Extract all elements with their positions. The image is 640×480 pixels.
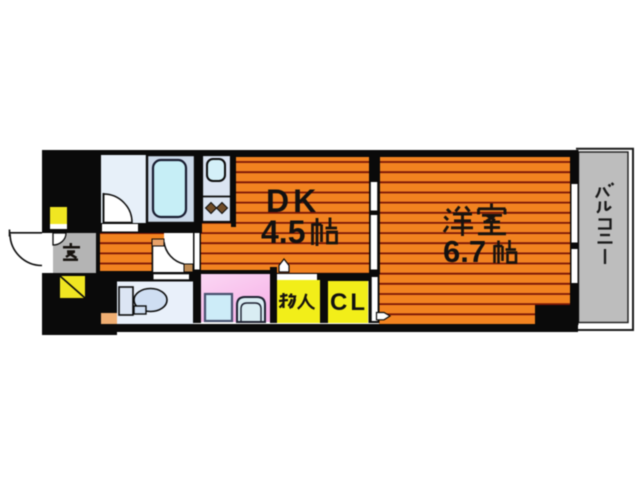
- svg-text:6.7: 6.7: [443, 234, 486, 269]
- svg-text:CL: CL: [330, 289, 368, 316]
- svg-text:4.5: 4.5: [261, 214, 305, 250]
